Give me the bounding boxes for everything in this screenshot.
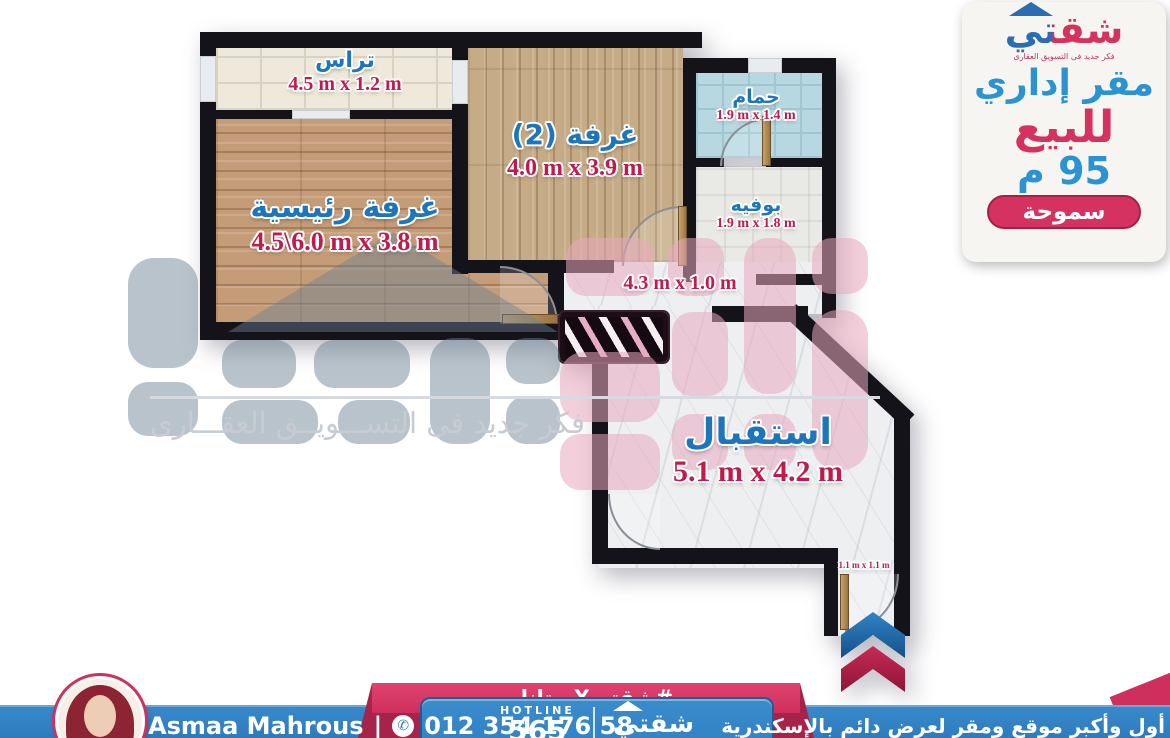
reception-dims: 5.1 m x 4.2 m — [638, 455, 878, 489]
entry-dims: 1.1 m x 1.1 m — [832, 560, 896, 570]
corridor-dims: 4.3 m x 1.0 m — [600, 272, 760, 295]
terrace-name: تراس — [250, 48, 440, 73]
location-badge: سموحة — [987, 195, 1142, 229]
bathroom-dims: 1.9 m x 1.4 m — [698, 108, 814, 124]
master-room-dims: 4.5\6.0 m x 3.8 m — [238, 227, 452, 257]
buffet-dims: 1.9 m x 1.8 m — [698, 216, 814, 232]
terrace-dims: 4.5 m x 1.2 m — [250, 73, 440, 96]
reception-name: استقبال — [638, 412, 878, 453]
agent-contact: Asmaa Mahrous | ✆ 012 354 176 58 — [148, 712, 633, 738]
property-area: 95 م — [1017, 149, 1111, 193]
buffet-name: بوفيه — [698, 194, 814, 216]
master-room-name: غرفة رئيسية — [238, 190, 452, 225]
offer-type: للبيع — [1014, 102, 1114, 153]
brand-logo: شقتي — [1005, 4, 1124, 56]
contact-divider: | — [373, 712, 382, 738]
hotline-logo-roof-icon — [613, 701, 643, 711]
agent-name: Asmaa Mahrous — [148, 712, 363, 738]
agent-phone: 012 354 176 58 — [424, 712, 633, 738]
footer-slogan: أول وأكبر موقع ومقر لعرض دائم بالإسكندري… — [795, 714, 1165, 738]
room2-name: غرفة (2) — [480, 118, 670, 151]
phone-icon: ✆ — [392, 715, 414, 737]
logo-house-roof-icon — [1009, 2, 1053, 16]
flyer-page: فكر جديد فى التســـويــق العقـــارى تراس… — [0, 0, 1170, 738]
bathroom-name: حمام — [698, 86, 814, 108]
room2-dims: 4.0 m x 3.9 m — [480, 155, 670, 182]
property-type: مقر إداري — [974, 63, 1154, 104]
offer-panel: شقتي فكر جديد فى التسويق العقارى مقر إدا… — [962, 2, 1166, 262]
agent-photo-face — [84, 695, 116, 737]
